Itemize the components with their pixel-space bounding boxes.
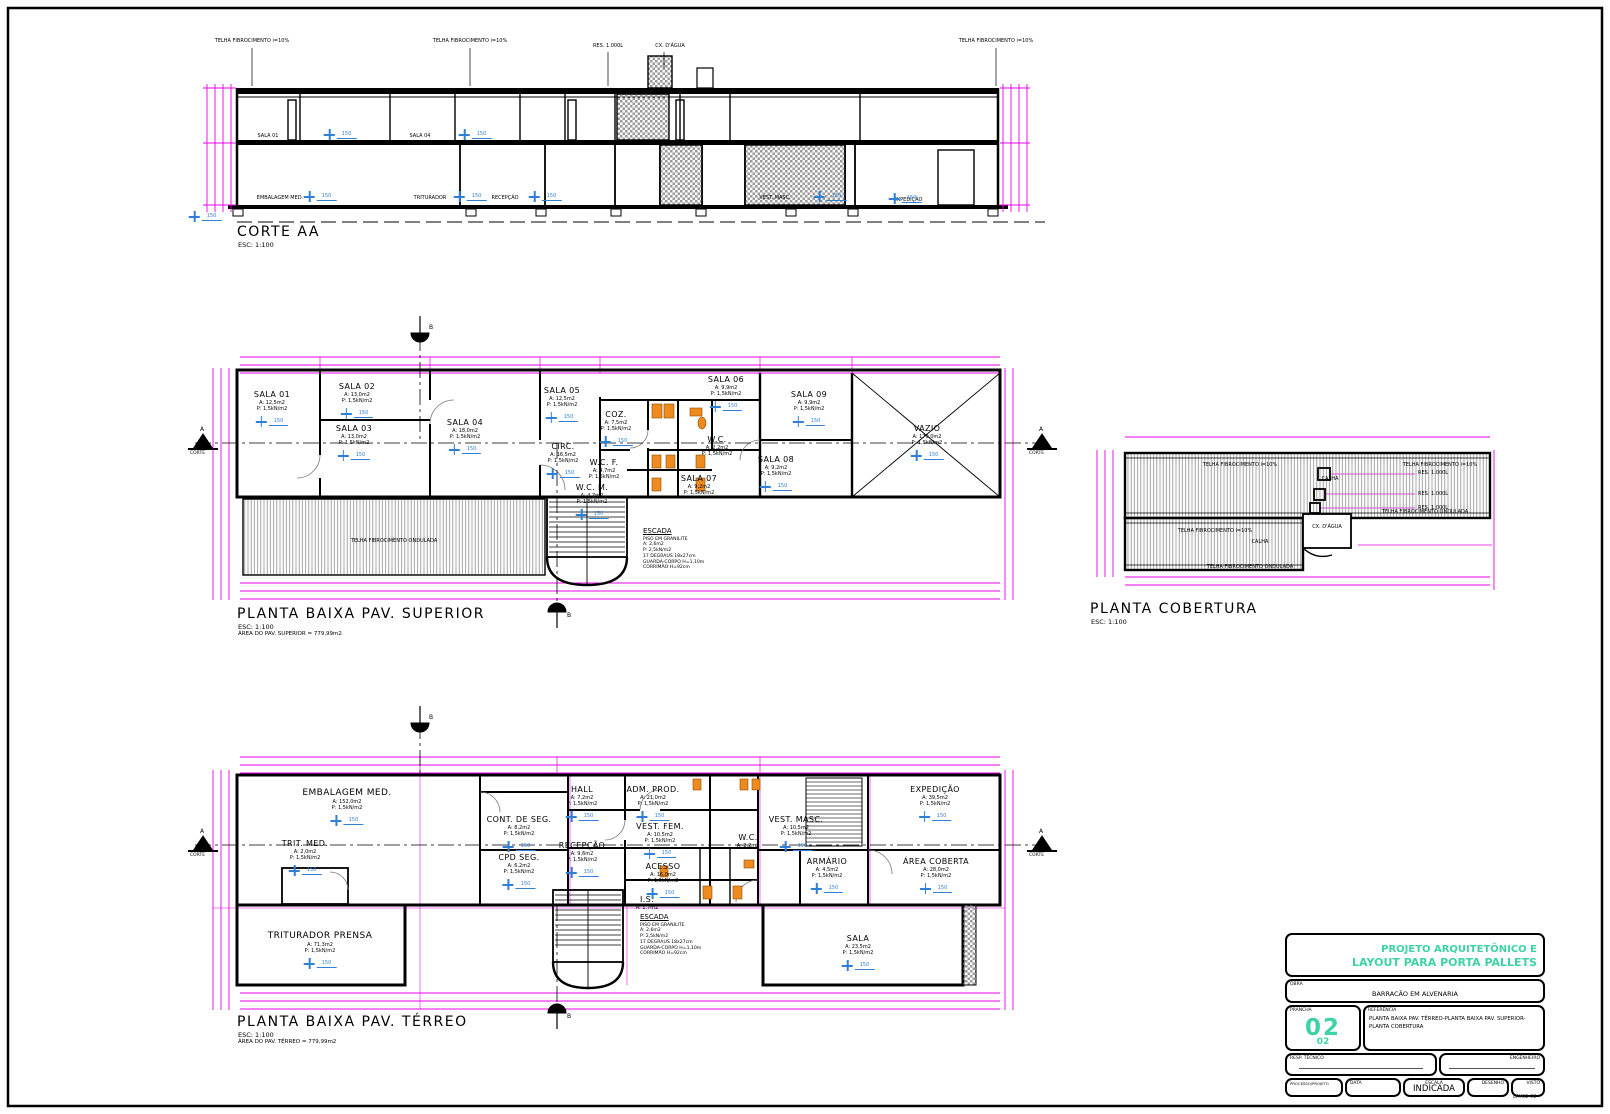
level-cross-icon bbox=[811, 883, 822, 894]
corte-marker-label: CORTE bbox=[1029, 451, 1044, 456]
corte-note-telha-2: TELHA FIBROCIMENTO i=10% bbox=[433, 38, 507, 44]
project-title-line2: LAYOUT PARA PORTA PALLETS bbox=[1352, 956, 1537, 969]
cobertura-note-ondulada-1: TELHA FIBROCIMENTO ONDULADA bbox=[1207, 564, 1293, 570]
corte-scale: ESC: 1:100 bbox=[238, 241, 274, 249]
cobertura-note-res-3: RES. 1.000L bbox=[1418, 505, 1448, 511]
room-recepcao: RECEPÇÃOA: 9,6m2P: 1,5kN/m2150 bbox=[559, 841, 606, 882]
level-cross-icon bbox=[449, 444, 460, 455]
section-marker-a: A bbox=[1039, 828, 1043, 835]
level-cross-icon bbox=[644, 848, 655, 859]
level-cross-icon bbox=[637, 811, 648, 822]
level-cross-icon bbox=[529, 191, 540, 202]
title-block-prancha-cell: PRANCHA 02 02 bbox=[1285, 1005, 1361, 1051]
terreo-scale: ESC: 1:100 bbox=[238, 1031, 274, 1039]
level-cross-icon bbox=[324, 129, 335, 140]
room-vest-masc: VEST. MASC.A: 10,5m2P: 1,5kN/m2150 bbox=[769, 815, 824, 856]
room-trit: TRIT. MED.A: 2,0m2P: 1,5kN/m2150 bbox=[282, 839, 329, 880]
level-cross-icon bbox=[920, 883, 931, 894]
room-vest-fem: VEST. FEM.A: 10,5m2P: 1,5kN/m2150 bbox=[636, 822, 684, 863]
section-marker-a: A bbox=[200, 426, 204, 433]
cobertura-note-res-1: RES. 1.000L bbox=[1418, 470, 1448, 476]
corte-room-lo1: EMBALAGEM MED. bbox=[257, 195, 303, 201]
desenho-label: DESENHO bbox=[1482, 1081, 1504, 1086]
level-cross-icon bbox=[304, 958, 315, 969]
level-cross-icon bbox=[814, 191, 825, 202]
level-cross-icon bbox=[503, 841, 514, 852]
level-cross-icon bbox=[459, 129, 470, 140]
cobertura-note-telha-3: TELHA FIBROCIMENTO i=10% bbox=[1178, 528, 1252, 534]
corte-room-lo4: VEST. MASC. bbox=[759, 195, 790, 201]
project-title-line1: PROJETO ARQUITETÔNICO E bbox=[1381, 944, 1537, 955]
engenheiro-label: ENGENHEIRO bbox=[1510, 1056, 1540, 1061]
room-expedicao: EXPEDIÇÃOA: 39,5m2P: 1,5kN/m2150 bbox=[910, 785, 960, 826]
signature-line bbox=[1299, 1068, 1423, 1069]
obra-value: BARRACÃO EM ALVENARIA bbox=[1287, 990, 1543, 998]
corte-room-lo2: TRITURADOR bbox=[414, 195, 447, 201]
room-wcf: W.C. F.A: 4,7m2P: 1,5kN/m2 bbox=[589, 458, 620, 480]
level-cross-icon bbox=[341, 408, 352, 419]
corte-marker-label: CORTE bbox=[190, 853, 205, 858]
corte-level-marker: 150 bbox=[529, 191, 562, 202]
room-sala06: SALA 06A: 9,9m2P: 1,5kN/m2150 bbox=[708, 375, 744, 416]
superior-title: PLANTA BAIXA PAV. SUPERIOR bbox=[237, 606, 485, 622]
level-cross-icon bbox=[566, 811, 577, 822]
prancha-total: 02 bbox=[1287, 1037, 1359, 1047]
drawing-sheet: CORTE AA ESC: 1:100 TELHA FIBROCIMENTO i… bbox=[0, 0, 1610, 1114]
title-block: PROJETO ARQUITETÔNICO E LAYOUT PARA PORT… bbox=[1285, 933, 1545, 1090]
room-circ: CIRC.A: 16,5m2P: 1,5kN/m2150 bbox=[547, 442, 580, 483]
level-cross-icon bbox=[304, 191, 315, 202]
level-cross-icon bbox=[760, 481, 771, 492]
corte-marker-label: CORTE bbox=[190, 451, 205, 456]
level-cross-icon bbox=[889, 193, 900, 204]
section-marker-b: B bbox=[429, 714, 433, 721]
section-marker-a: A bbox=[200, 828, 204, 835]
room-sala04: SALA 04A: 18,0m2P: 1,5kN/m2150 bbox=[447, 418, 483, 459]
room-hall: HALLA: 7,2m2P: 1,5kN/m2150 bbox=[566, 785, 599, 826]
title-block-processo-cell: PROCESSO/PROJETO bbox=[1285, 1078, 1343, 1097]
level-cross-icon bbox=[911, 450, 922, 461]
room-vazio: VAZIOA: 170,0m2P: 1,5kN/m2150 bbox=[911, 424, 944, 465]
section-marker-b: B bbox=[429, 324, 433, 331]
terreo-area-note: ÁREA DO PAV. TÉRREO = 779,99m2 bbox=[238, 1039, 336, 1045]
room-sala01: SALA 01A: 12,5m2P: 1,5kN/m2150 bbox=[254, 390, 290, 431]
signature-line bbox=[1449, 1068, 1535, 1069]
corte-level-marker: 150 bbox=[889, 193, 922, 204]
corte-level-marker: 150 bbox=[814, 191, 847, 202]
level-cross-icon bbox=[338, 450, 349, 461]
room-area-coberta: ÁREA COBERTAA: 28,0m2P: 1,5kN/m2150 bbox=[903, 857, 969, 898]
corte-room-up1: SALA 01 bbox=[258, 133, 279, 139]
room-cont-seg: CONT. DE SEG.A: 8,2m2P: 1,5kN/m2150 bbox=[487, 815, 552, 856]
corte-room-lo3: RECEPÇÃO bbox=[491, 195, 518, 201]
room-triturador-prensa: TRITURADOR PRENSAA: 71,3m2P: 1,5kN/m2150 bbox=[268, 931, 373, 973]
level-cross-icon bbox=[793, 416, 804, 427]
level-cross-icon bbox=[566, 867, 577, 878]
corte-level-marker: 150 bbox=[324, 129, 357, 140]
cobertura-title: PLANTA COBERTURA bbox=[1090, 601, 1258, 617]
data-label: DATA bbox=[1350, 1081, 1362, 1086]
processo-label: PROCESSO/PROJETO bbox=[1290, 1081, 1329, 1086]
room-wc-superior: W.C.A: 2,2m2P: 1,5kN/m2 bbox=[702, 435, 733, 457]
superior-section-lines bbox=[188, 316, 1057, 628]
superior-escada-notes: ESCADA PISO EM GRANILITEA: 2,6m2 P: 2,5k… bbox=[643, 527, 704, 571]
referencia-line1: PLANTA BAIXA PAV. TÉRREO-PLANTA BAIXA PA… bbox=[1369, 1016, 1525, 1022]
title-block-obra-cell: OBRA BARRACÃO EM ALVENARIA bbox=[1285, 979, 1545, 1003]
corte-level-marker: 150 bbox=[304, 191, 337, 202]
cobertura-note-res-2: RES. 1.000L bbox=[1418, 491, 1448, 497]
room-wc-terreo: W.C.A: 2,2m2 bbox=[737, 833, 760, 849]
room-wcm: W.C. M.A: 4,7m2P: 1,5kN/m2150 bbox=[576, 483, 609, 524]
terreo-escada-notes: ESCADA PISO EM GRANILITEA: 2,6m2 P: 2,5k… bbox=[640, 913, 701, 957]
room-sala02: SALA 02A: 13,0m2P: 1,5kN/m2150 bbox=[339, 382, 375, 423]
title-block-escala-cell: ESCALA INDICADA bbox=[1403, 1078, 1465, 1097]
level-cross-icon bbox=[189, 211, 200, 222]
room-is: I.S.A: 1,7m2 bbox=[636, 895, 659, 911]
cobertura-scale: ESC: 1:100 bbox=[1091, 618, 1127, 626]
corte-level-marker: 150 bbox=[189, 211, 222, 222]
corte-level-marker: 150 bbox=[459, 129, 492, 140]
level-cross-icon bbox=[710, 401, 721, 412]
level-cross-icon bbox=[780, 841, 791, 852]
room-armario: ARMÁRIOA: 4,5m2P: 1,5kN/m2150 bbox=[807, 857, 847, 898]
title-block-data-cell: DATA bbox=[1345, 1078, 1401, 1097]
section-marker-a: A bbox=[1039, 426, 1043, 433]
level-cross-icon bbox=[454, 191, 465, 202]
cobertura-note-calha-1: CALHA bbox=[1322, 476, 1339, 482]
corte-room-up2: SALA 04 bbox=[410, 133, 431, 139]
visto-label: VISTO bbox=[1526, 1081, 1540, 1086]
level-cross-icon bbox=[331, 815, 342, 826]
level-cross-icon bbox=[256, 416, 267, 427]
corte-note-telha-1: TELHA FIBROCIMENTO i=10% bbox=[215, 38, 289, 44]
level-cross-icon bbox=[600, 436, 611, 447]
room-sala03: SALA 03A: 13,0m2P: 1,5kN/m2150 bbox=[336, 424, 372, 465]
file-note: LAY02-02 bbox=[1513, 1094, 1537, 1100]
room-sala05: SALA 05A: 12,5m2P: 1,5kN/m2150 bbox=[544, 386, 580, 427]
room-sala08: SALA 08A: 9,2m2P: 1,5kN/m2150 bbox=[758, 455, 794, 496]
room-sala-terreo: SALAA: 23,5m2P: 1,5kN/m2150 bbox=[842, 934, 875, 975]
corte-note-telha-3: TELHA FIBROCIMENTO i=10% bbox=[959, 38, 1033, 44]
level-cross-icon bbox=[547, 468, 558, 479]
prancha-label: PRANCHA bbox=[1290, 1008, 1312, 1013]
section-marker-b: B bbox=[567, 1013, 571, 1020]
room-sala07: SALA 07A: 9,2m2P: 1,5kN/m2 bbox=[681, 474, 717, 496]
cobertura-note-calha-2: CALHA bbox=[1252, 539, 1269, 545]
obra-label: OBRA bbox=[1290, 982, 1303, 987]
title-block-referencia-cell: REFERÊNCIA PLANTA BAIXA PAV. TÉRREO-PLAN… bbox=[1363, 1005, 1545, 1051]
room-adm-prod: ADM. PROD.A: 21,0m2P: 1,5kN/m2150 bbox=[626, 785, 679, 826]
cobertura-note-telha-2: TELHA FIBROCIMENTO i=10% bbox=[1403, 462, 1477, 468]
corte-marker-label: CORTE bbox=[1029, 853, 1044, 858]
superior-scale: ESC: 1:100 bbox=[238, 623, 274, 631]
title-block-resp-cell: RESP. TÉCNICO bbox=[1285, 1053, 1437, 1076]
corte-title: CORTE AA bbox=[237, 224, 320, 240]
level-cross-icon bbox=[842, 960, 853, 971]
referencia-line2: PLANTA COBERTURA bbox=[1369, 1024, 1423, 1030]
room-sala09: SALA 09A: 9,9m2P: 1,5kN/m2150 bbox=[791, 390, 827, 431]
cobertura-note-telha-1: TELHA FIBROCIMENTO i=10% bbox=[1203, 462, 1277, 468]
room-coz: COZ.A: 7,5m2P: 1,5kN/m2150 bbox=[600, 410, 633, 451]
terreo-title: PLANTA BAIXA PAV. TÉRREO bbox=[237, 1014, 468, 1030]
superior-area-note: ÁREA DO PAV. SUPERIOR = 779,99m2 bbox=[238, 631, 342, 637]
escala-value: INDICADA bbox=[1405, 1084, 1463, 1094]
title-block-project-cell: PROJETO ARQUITETÔNICO E LAYOUT PARA PORT… bbox=[1285, 933, 1545, 977]
level-cross-icon bbox=[503, 879, 514, 890]
level-cross-icon bbox=[576, 509, 587, 520]
referencia-label: REFERÊNCIA bbox=[1368, 1008, 1396, 1013]
cobertura-note-cx: CX. D'ÁGUA bbox=[1312, 524, 1342, 530]
corte-level-marker: 150 bbox=[454, 191, 487, 202]
superior-note-ondulada: TELHA FIBROCIMENTO ONDULADA bbox=[351, 538, 437, 544]
section-marker-b: B bbox=[567, 612, 571, 619]
title-block-eng-cell: ENGENHEIRO bbox=[1439, 1053, 1545, 1076]
title-block-desenho-cell: DESENHO bbox=[1467, 1078, 1509, 1097]
resp-label: RESP. TÉCNICO bbox=[1290, 1056, 1324, 1061]
level-cross-icon bbox=[546, 412, 557, 423]
corte-note-cx: CX. D'ÁGUA bbox=[655, 43, 685, 49]
level-cross-icon bbox=[919, 811, 930, 822]
room-embalagem: EMBALAGEM MED.A: 152,0m2P: 1,5kN/m2150 bbox=[302, 788, 391, 830]
corte-note-res: RES. 1.000L bbox=[593, 43, 623, 49]
level-cross-icon bbox=[289, 865, 300, 876]
room-cpd-seg: CPD SEG.A: 6,2m2P: 1,5kN/m2150 bbox=[498, 853, 539, 894]
